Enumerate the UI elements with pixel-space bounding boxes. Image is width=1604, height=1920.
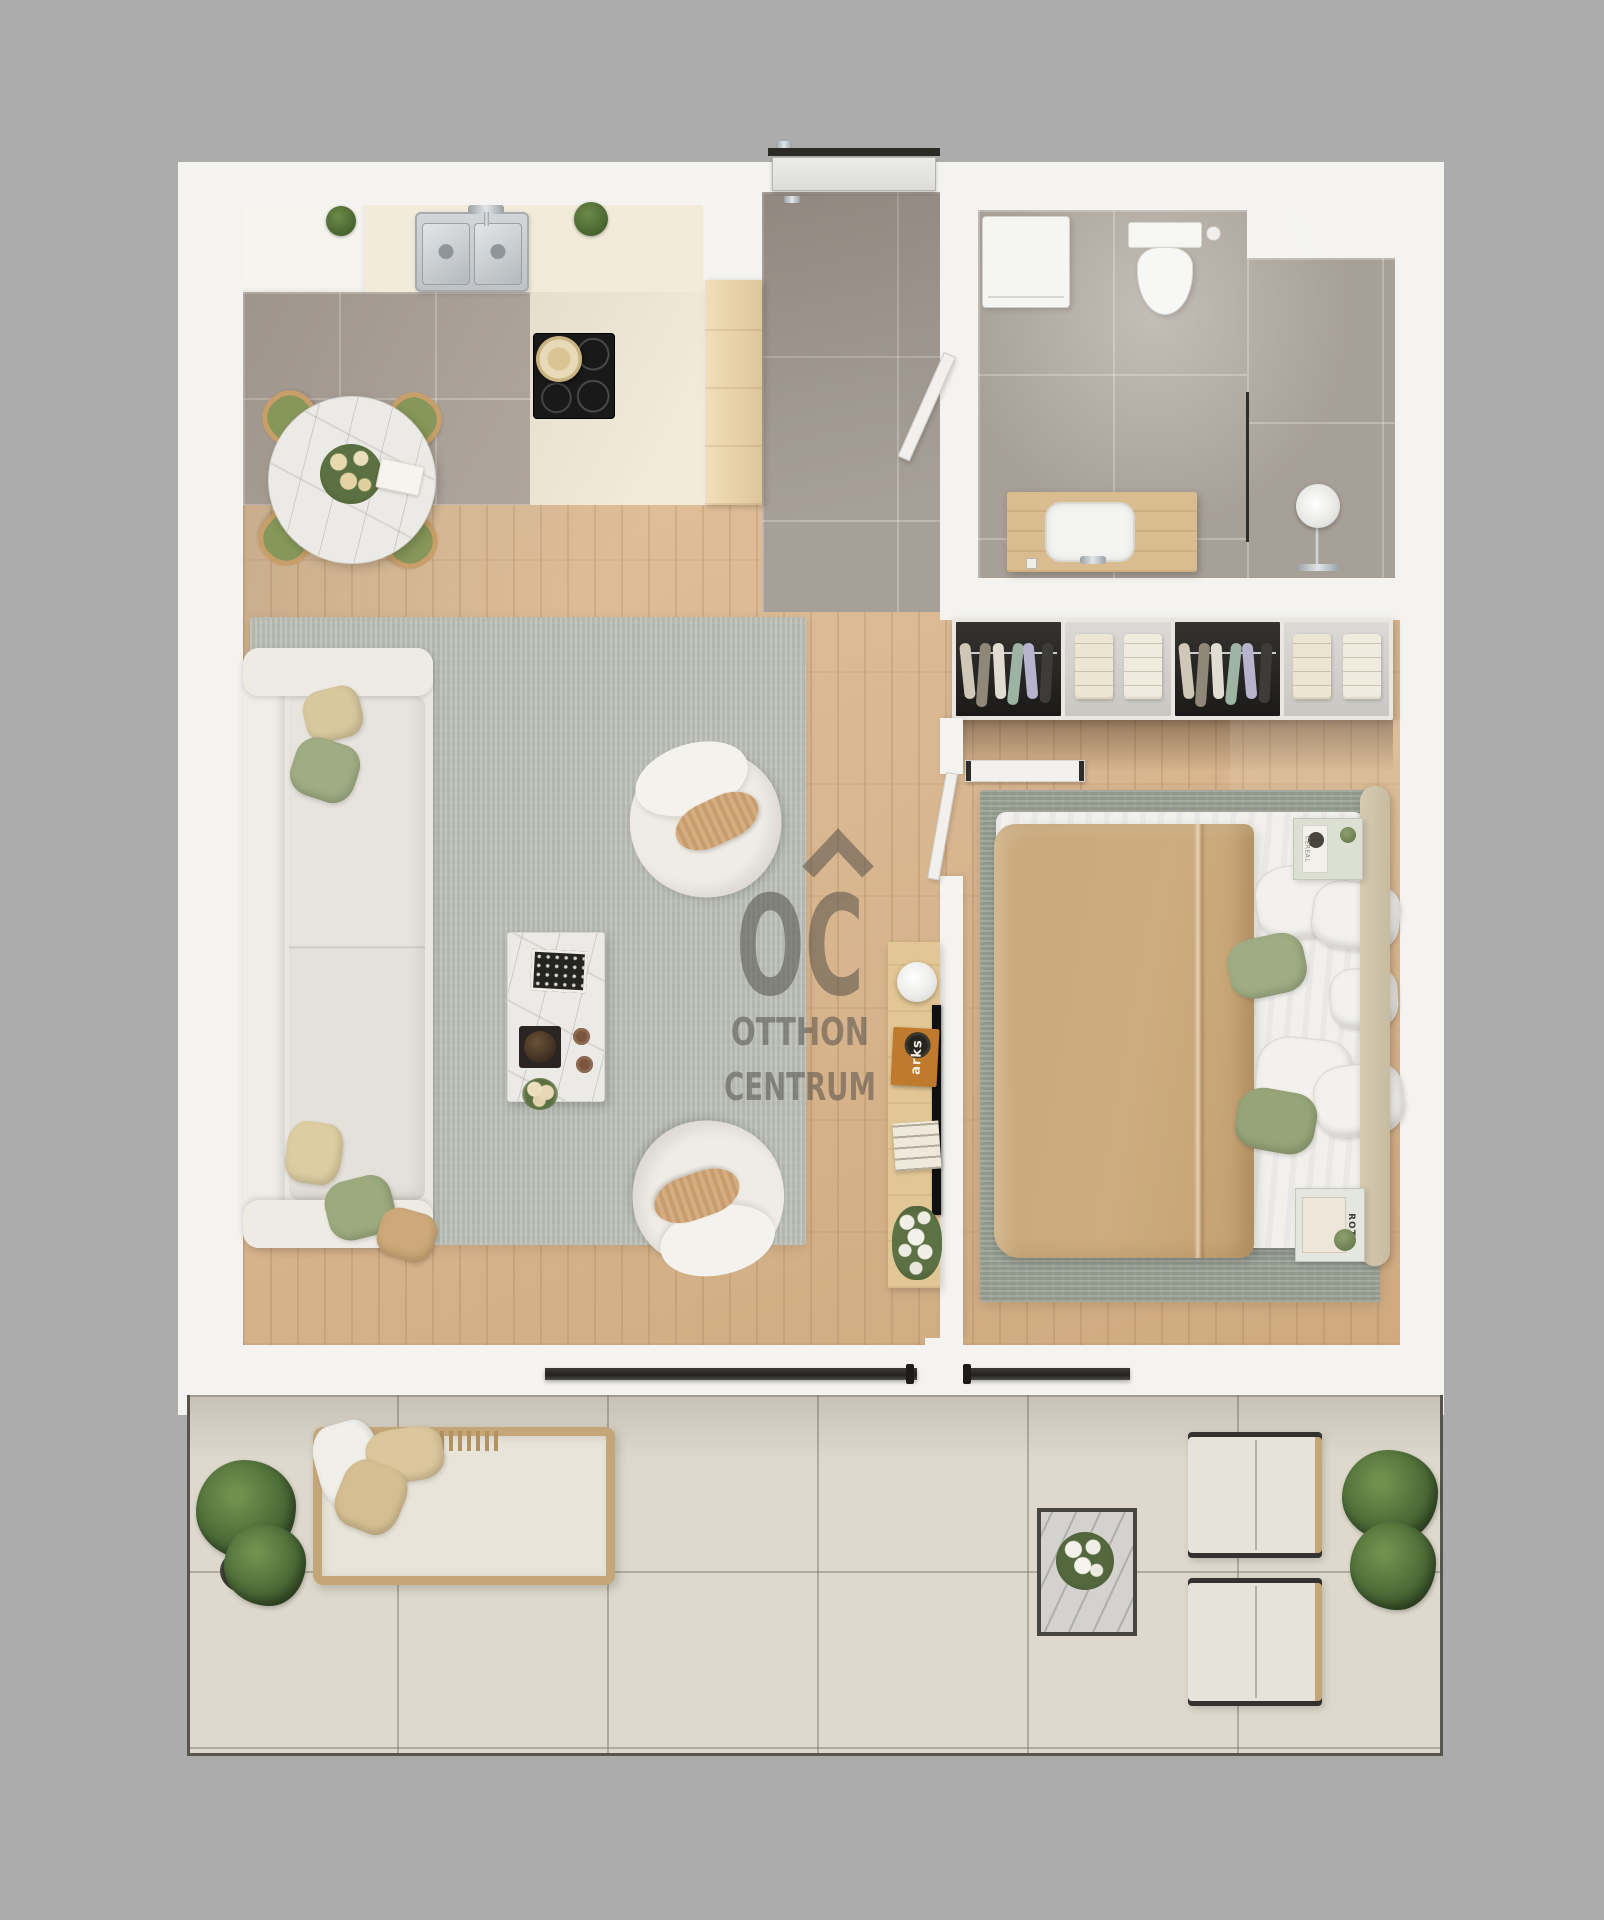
wall-pillar [925, 1338, 963, 1396]
floor-plan-render: arks CEREAL ROT [0, 0, 1604, 1920]
folded-clothes [1124, 634, 1162, 700]
otthon-centrum-watermark: OC OTTHON CENTRUM [686, 816, 920, 1108]
entrance-door [772, 157, 936, 191]
hanging-garment [1178, 642, 1195, 699]
hanging-garment [1006, 642, 1023, 705]
hanging-garment [1040, 642, 1054, 702]
hanging-garment [1194, 642, 1209, 707]
book-stack [892, 1120, 941, 1171]
hall-cabinet [705, 280, 762, 505]
shower-head [1296, 484, 1340, 528]
lounge-chair [1188, 1432, 1322, 1558]
shower-glass-partition [1246, 392, 1249, 542]
cooking-pot [536, 336, 582, 382]
wardrobe-row [952, 618, 1393, 720]
bed-blanket [994, 824, 1254, 1258]
shower-handles [1297, 564, 1339, 571]
vanity-faucet [1080, 556, 1106, 564]
rose-bouquet [1056, 1532, 1114, 1590]
wall-shelf [965, 760, 1085, 782]
watermark-line1: OTTHON [731, 1010, 869, 1054]
hanging-garment [976, 642, 991, 707]
hanging-garment [992, 642, 1006, 698]
hanging-garment [1023, 642, 1039, 699]
hall-tile-floor [762, 192, 940, 612]
door-handle-icon [784, 196, 800, 203]
kitchen-faucet-stem [484, 212, 489, 226]
watermark-line2: CENTRUM [724, 1065, 876, 1108]
hanging-garment [1258, 642, 1272, 702]
potted-plant [224, 1524, 306, 1606]
sliding-glass-door [545, 1368, 917, 1380]
partition-wall [940, 876, 963, 1338]
door-handle-icon [776, 141, 792, 148]
washing-machine-lid [988, 296, 1064, 298]
wardrobe-shelf-section [1065, 622, 1170, 716]
folded-clothes [1075, 634, 1113, 700]
nightstand: ROT [1295, 1188, 1365, 1262]
partition-wall [940, 718, 963, 774]
vase-flowers [892, 1206, 942, 1280]
hanging-garment [1225, 642, 1242, 705]
cup [576, 1056, 593, 1073]
folded-clothes [1293, 634, 1331, 700]
bathroom-tile-floor [1247, 258, 1395, 578]
hanging-garment [1242, 642, 1258, 699]
nightstand: CEREAL [1293, 818, 1363, 880]
plant-icon [574, 202, 608, 236]
flower-decor [522, 1078, 558, 1110]
door-handle-icon [963, 1364, 971, 1384]
watermark-logo: OC [736, 866, 864, 1027]
armchair-pillow [648, 1160, 746, 1231]
decor-bowl [524, 1031, 556, 1063]
wardrobe-hanging-section [956, 622, 1061, 716]
lounge-chair [1188, 1578, 1322, 1706]
vessel-sink [1045, 502, 1135, 562]
sink-basin [422, 223, 470, 285]
folded-clothes [1343, 634, 1381, 700]
decor-tray [530, 949, 588, 994]
sink-basin [474, 223, 522, 285]
power-socket [1026, 558, 1037, 569]
potted-plant [1350, 1522, 1436, 1610]
candle-icon [1334, 1229, 1356, 1251]
entrance-door-frame [768, 148, 940, 156]
sliding-glass-door [963, 1368, 1130, 1380]
flower-bouquet [320, 444, 382, 504]
double-sink [415, 212, 529, 292]
plant-icon [1340, 827, 1356, 843]
washing-machine [982, 216, 1070, 308]
cup [573, 1028, 590, 1045]
wardrobe-shelf-section [1284, 622, 1389, 716]
daybed-rattan-back [440, 1431, 500, 1451]
toilet-tank [1128, 222, 1202, 248]
wardrobe-hanging-section [1175, 622, 1280, 716]
hanging-garment [959, 642, 976, 699]
magazine-title: CEREAL [1304, 827, 1311, 871]
door-handle-icon [906, 1364, 914, 1384]
plant-icon [326, 206, 356, 236]
hanging-garment [1211, 642, 1225, 698]
toilet-brush [1206, 226, 1221, 241]
